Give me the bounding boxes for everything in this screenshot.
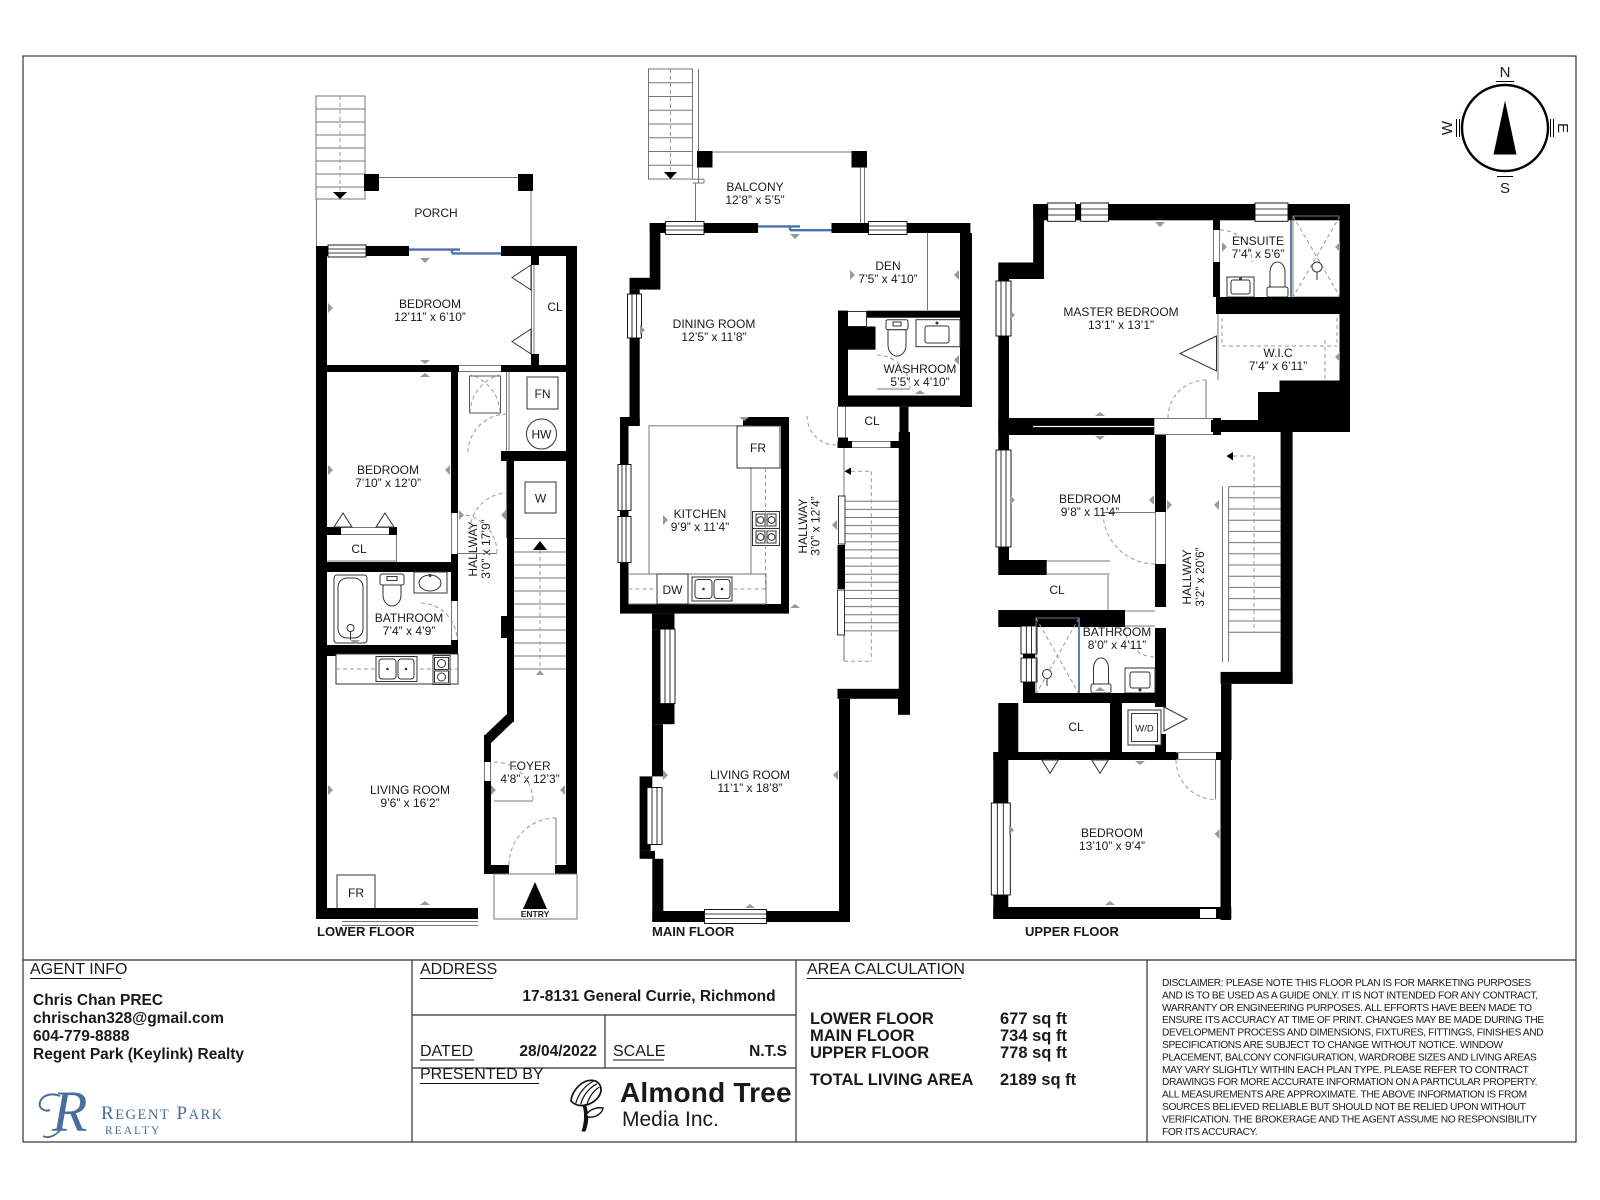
svg-text:ENSUITE: ENSUITE [1232, 234, 1284, 248]
svg-text:FOR ITS ACCURACY.: FOR ITS ACCURACY. [1162, 1127, 1257, 1138]
svg-text:17-8131 General Currie, Richmo: 17-8131 General Currie, Richmond [522, 988, 775, 1005]
svg-text:Chris Chan PREC: Chris Chan PREC [33, 992, 163, 1009]
svg-text:SCALE: SCALE [613, 1043, 665, 1060]
svg-text:677 sq ft: 677 sq ft [1000, 1010, 1067, 1028]
svg-text:ENTRY: ENTRY [521, 909, 550, 919]
svg-text:LOWER FLOOR: LOWER FLOOR [317, 924, 415, 939]
svg-text:DW: DW [663, 583, 684, 597]
svg-text:TOTAL LIVING AREA: TOTAL LIVING AREA [810, 1071, 974, 1089]
svg-text:CL: CL [351, 542, 367, 556]
svg-text:UPPER FLOOR: UPPER FLOOR [1025, 924, 1120, 939]
svg-text:ALL MEASUREMENTS ARE APPROXIMA: ALL MEASUREMENTS ARE APPROXIMATE. THE AB… [1162, 1090, 1527, 1101]
svg-text:BEDROOM: BEDROOM [357, 463, 419, 477]
svg-text:28/04/2022: 28/04/2022 [519, 1043, 597, 1060]
svg-text:VERIFICATION. THE BROKERAGE AN: VERIFICATION. THE BROKERAGE AND THE AGEN… [1162, 1114, 1537, 1125]
svg-text:9’8” x 11’4”: 9’8” x 11’4” [1061, 505, 1119, 519]
svg-text:chrischan328@gmail.com: chrischan328@gmail.com [33, 1010, 224, 1027]
svg-text:7’5” x 4’10”: 7’5” x 4’10” [858, 272, 917, 286]
svg-text:2189 sq ft: 2189 sq ft [1000, 1071, 1077, 1089]
svg-text:MAY VARY SLIGHTLY WITHIN EACH: MAY VARY SLIGHTLY WITHIN EACH PLAN TYPE.… [1162, 1065, 1529, 1076]
svg-text:SOURCES BELIEVED RELIABLE BUT: SOURCES BELIEVED RELIABLE BUT SHOULD NOT… [1162, 1102, 1526, 1113]
svg-text:CL: CL [547, 300, 563, 314]
svg-text:KITCHEN: KITCHEN [674, 507, 727, 521]
svg-text:WARRANTY OR ENGINEERING PURPOS: WARRANTY OR ENGINEERING PURPOSES. ALL EF… [1162, 1003, 1532, 1014]
svg-text:12’5” x 11’8”: 12’5” x 11’8” [681, 330, 746, 344]
svg-text:Media Inc.: Media Inc. [622, 1108, 719, 1131]
svg-text:Almond Tree: Almond Tree [620, 1077, 792, 1108]
svg-text:CL: CL [1049, 583, 1065, 597]
svg-text:BATHROOM: BATHROOM [375, 611, 443, 625]
svg-text:5’5” x 4’10”: 5’5” x 4’10” [890, 375, 949, 389]
svg-text:E: E [1554, 123, 1571, 133]
svg-text:LIVING ROOM: LIVING ROOM [370, 783, 450, 797]
svg-text:11’1” x 18’8”: 11’1” x 18’8” [717, 781, 782, 795]
svg-text:N.T.S: N.T.S [749, 1043, 787, 1060]
svg-text:W: W [535, 492, 547, 506]
svg-text:BATHROOM: BATHROOM [1083, 625, 1151, 639]
svg-text:HALLWAY: HALLWAY [466, 521, 480, 576]
svg-text:3’2” x 20’6”: 3’2” x 20’6” [1193, 547, 1207, 606]
svg-text:DEN: DEN [875, 259, 900, 273]
svg-text:13’10” x 9’4”: 13’10” x 9’4” [1079, 839, 1145, 853]
svg-text:FOYER: FOYER [509, 759, 551, 773]
svg-text:734 sq ft: 734 sq ft [1000, 1027, 1067, 1045]
svg-text:CL: CL [1068, 720, 1084, 734]
svg-text:PLACEMENT, BALCONY CONFIGURATI: PLACEMENT, BALCONY CONFIGURATION, WARDRO… [1162, 1052, 1537, 1063]
svg-text:HW: HW [532, 428, 553, 442]
svg-text:LOWER FLOOR: LOWER FLOOR [810, 1010, 934, 1028]
svg-text:WASHROOM: WASHROOM [884, 362, 957, 376]
svg-text:AND IS TO BE USED AS A GUIDE O: AND IS TO BE USED AS A GUIDE ONLY. IT IS… [1162, 990, 1538, 1001]
svg-text:778 sq ft: 778 sq ft [1000, 1044, 1067, 1062]
svg-text:7’4” x 5’6”: 7’4” x 5’6” [1232, 247, 1285, 261]
svg-text:BEDROOM: BEDROOM [1081, 826, 1143, 840]
svg-text:SPECIFICATIONS ARE SUBJECT TO: SPECIFICATIONS ARE SUBJECT TO CHANGE WIT… [1162, 1040, 1503, 1051]
svg-text:PORCH: PORCH [414, 206, 457, 220]
svg-text:BEDROOM: BEDROOM [1059, 492, 1121, 506]
svg-text:BEDROOM: BEDROOM [399, 297, 461, 311]
svg-text:S: S [1500, 180, 1510, 197]
svg-text:ENSURE ITS ACCURACY AT TIME OF: ENSURE ITS ACCURACY AT TIME OF PRINT. CH… [1162, 1015, 1544, 1026]
svg-text:REGENT PARK: REGENT PARK [101, 1103, 224, 1124]
svg-text:DATED: DATED [420, 1043, 473, 1060]
svg-text:FR: FR [348, 886, 364, 900]
svg-text:HALLWAY: HALLWAY [1180, 549, 1194, 604]
svg-text:DRAWINGS FOR MORE ACCURATE INF: DRAWINGS FOR MORE ACCURATE INFORMATION O… [1162, 1077, 1537, 1088]
svg-text:13’1” x 13’1”: 13’1” x 13’1” [1088, 318, 1154, 332]
svg-text:DEVELOPMENT PROCESS AND DIMENS: DEVELOPMENT PROCESS AND DIMENSIONS, FIXT… [1162, 1028, 1543, 1039]
svg-text:MAIN FLOOR: MAIN FLOOR [810, 1027, 915, 1045]
svg-text:UPPER FLOOR: UPPER FLOOR [810, 1044, 929, 1062]
svg-text:9’9” x 11’4”: 9’9” x 11’4” [671, 520, 729, 534]
svg-text:DISCLAIMER: PLEASE NOTE THIS F: DISCLAIMER: PLEASE NOTE THIS FLOOR PLAN … [1162, 978, 1531, 989]
svg-text:FR: FR [750, 441, 766, 455]
svg-text:W.I.C: W.I.C [1263, 346, 1293, 360]
svg-text:PRESENTED BY: PRESENTED BY [420, 1066, 544, 1083]
svg-text:MAIN FLOOR: MAIN FLOOR [652, 924, 735, 939]
svg-text:9’6” x 16’2”: 9’6” x 16’2” [380, 796, 439, 810]
svg-text:DINING ROOM: DINING ROOM [673, 317, 756, 331]
svg-text:7’4” x 4’9”: 7’4” x 4’9” [383, 624, 436, 638]
svg-text:Regent Park (Keylink) Realty: Regent Park (Keylink) Realty [33, 1046, 244, 1063]
svg-text:ADDRESS: ADDRESS [420, 961, 497, 978]
svg-text:AREA CALCULATION: AREA CALCULATION [807, 961, 965, 978]
svg-text:W: W [1439, 120, 1456, 135]
svg-text:12’8” x 5’5”: 12’8” x 5’5” [725, 193, 784, 207]
svg-text:8’0” x 4’11”: 8’0” x 4’11” [1088, 638, 1146, 652]
svg-text:AGENT INFO: AGENT INFO [30, 961, 128, 978]
svg-text:7’10” x 12’0”: 7’10” x 12’0” [355, 476, 421, 490]
svg-text:4’8” x 12’3”: 4’8” x 12’3” [500, 772, 559, 786]
svg-text:604-779-8888: 604-779-8888 [33, 1028, 130, 1045]
svg-text:REALTY: REALTY [105, 1125, 161, 1137]
svg-text:LIVING ROOM: LIVING ROOM [710, 768, 790, 782]
svg-text:MASTER BEDROOM: MASTER BEDROOM [1063, 305, 1178, 319]
svg-text:W/D: W/D [1135, 724, 1154, 735]
svg-text:3’0” x 17’9”: 3’0” x 17’9” [479, 519, 493, 578]
svg-text:BALCONY: BALCONY [726, 180, 783, 194]
svg-text:FN: FN [535, 387, 551, 401]
svg-text:CL: CL [864, 414, 880, 428]
svg-text:7’4” x 6’11”: 7’4” x 6’11” [1249, 359, 1307, 373]
svg-text:12’11” x 6’10”: 12’11” x 6’10” [394, 310, 466, 324]
svg-text:3’0” x 12’4”: 3’0” x 12’4” [809, 496, 823, 555]
svg-text:N: N [1500, 64, 1511, 81]
